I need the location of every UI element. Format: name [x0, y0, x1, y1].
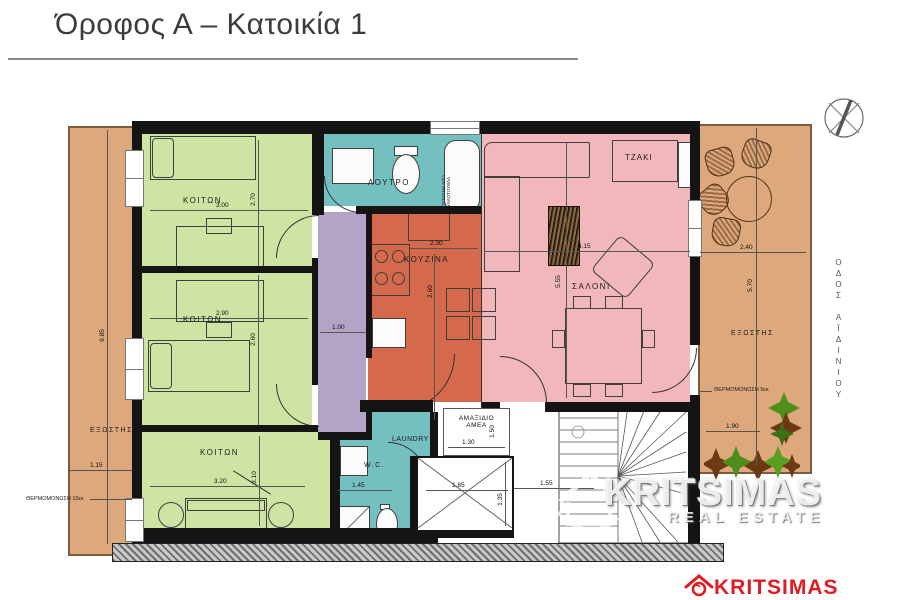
wall-right-2	[690, 255, 700, 345]
bedroom3-window	[125, 498, 144, 542]
desk1-chair	[206, 218, 232, 234]
bed3-pillows	[187, 500, 265, 511]
sofa-horizontal	[484, 142, 590, 178]
wall-bed3-wc	[330, 432, 340, 540]
slide: Όροφος Α – Κατοικία 1	[0, 0, 900, 600]
dimline-living-w	[484, 251, 690, 252]
wall-right-3	[690, 395, 700, 412]
wall-left-3	[132, 398, 142, 498]
dining-chair-3	[573, 384, 591, 397]
bed3-nightstand-right	[268, 502, 294, 528]
glassblock-note: ΠΕΤΑΣΜΑ ΑΠΟ ΥΑΛΟΤΟΥΒΛΑ	[441, 175, 451, 207]
dim-corridor-w: 1.00	[332, 324, 345, 331]
dimline-bed3-h	[259, 436, 260, 526]
toilet	[392, 154, 420, 194]
wall-bath-bottom-2	[356, 206, 482, 214]
dim-amea-w: 1.30	[462, 439, 475, 446]
kitchen-counter-top	[408, 213, 450, 241]
dimline-bed1-h	[258, 140, 259, 266]
logo-house-icon	[684, 572, 714, 600]
living-window	[688, 200, 702, 257]
dim-bed1-h: 2.70	[250, 193, 257, 206]
dim-bed3-w: 3.20	[214, 478, 227, 485]
wall-hall-left-2	[312, 258, 318, 385]
dim-balcR-h: 5.70	[747, 279, 754, 292]
bedroom1-window	[125, 150, 144, 207]
insulation-left-leader	[90, 499, 132, 500]
dimline-elev-w	[426, 490, 508, 491]
insulation-right-leader	[700, 391, 712, 392]
stove-burner-3	[375, 272, 388, 285]
kitchen-chair-2	[472, 288, 496, 312]
balcony-door-arc	[652, 348, 697, 393]
wall-hall-right-1	[366, 212, 372, 358]
kitchen-chair-1	[446, 288, 470, 312]
dim-wc-w: 1.45	[352, 482, 365, 489]
bed1-pillow	[152, 138, 174, 178]
dim-elev-h: 1.35	[497, 493, 504, 506]
dimline-balcR-h	[756, 128, 757, 466]
dining-chair-1	[573, 296, 591, 309]
glassblock-window	[430, 121, 480, 135]
kitchen-label: ΚΟΥΖΙΝΑ	[404, 255, 449, 264]
dim-elev-w: 1.85	[452, 482, 465, 489]
dimline-bed2-w	[150, 318, 308, 319]
dimline-bed1-w	[150, 210, 308, 211]
insulation-note-left: ΘΕΡΜΟΜΟΝΩΣΗ 10εκ	[26, 496, 84, 502]
wall-left-1	[132, 121, 142, 150]
dim-bed2-h: 2.60	[250, 333, 257, 346]
dim-bed3-h: 3.10	[251, 471, 258, 484]
amea-label-1: ΑΜΑΞΙΔΙΟ	[444, 415, 509, 422]
dimline-wc-w	[338, 490, 392, 491]
dining-chair-5	[552, 330, 565, 348]
fireplace-label: ΤΖΑΚΙ	[625, 153, 653, 162]
dim-balcL-w: 1.15	[90, 462, 103, 469]
kitchen-chair-4	[472, 316, 496, 340]
living-label: ΣΑΛΟΝΙ	[572, 282, 611, 291]
planter-right	[768, 392, 804, 452]
desk2-chair	[206, 322, 232, 338]
dim-balcL-h: 9.85	[99, 329, 106, 342]
balcony-right-label: ΕΞΩΣΤΗΣ	[731, 330, 774, 337]
balcony-left-label: ΕΞΩΣΤΗΣ	[90, 427, 133, 434]
dim-living-w: 4.15	[578, 243, 591, 250]
dining-chair-4	[605, 384, 623, 397]
dimline-balcR-w	[700, 252, 806, 253]
glassblock-note-line2: ΥΑΛΟΤΟΥΒΛΑ	[446, 175, 451, 207]
stove-burner-1	[375, 250, 388, 263]
bedroom2-window	[125, 338, 144, 400]
dim-amea-h: 1.50	[489, 425, 496, 438]
dim-planter-w: 1.90	[726, 423, 739, 430]
insulation-note-right: ΘΕΡΜΟΜΟΝΩΣΗ 5εκ	[714, 387, 769, 393]
wood-column	[548, 206, 580, 266]
sofa-vertical	[484, 176, 520, 272]
dimline-corridor	[320, 332, 366, 333]
kitchen-chair-3	[446, 316, 470, 340]
wall-living-bottom-2	[545, 402, 690, 412]
dimline-planter-w	[706, 431, 760, 432]
wall-right-1	[690, 121, 700, 200]
dining-chair-2	[605, 296, 623, 309]
kitchen-sink	[372, 318, 406, 348]
dimline-elev-h	[505, 462, 506, 526]
wall-left-2	[132, 205, 142, 338]
dim-living-h: 5.55	[555, 275, 562, 288]
wall-bottom-hatched	[112, 543, 724, 562]
dim-balcR-w: 2.40	[740, 244, 753, 251]
dimline-bed3-w	[150, 486, 305, 487]
dim-stair-w: 1.55	[540, 480, 553, 487]
dimline-bed2-h	[258, 275, 259, 425]
dimline-kitchen-h	[434, 254, 435, 420]
bathroom-label: ΛΟΥΤΡΟ	[368, 178, 410, 187]
wall-top	[132, 121, 700, 134]
wall-bed2-bed3	[142, 425, 318, 432]
dim-bed2-w: 2.90	[216, 310, 229, 317]
dimline-balcL-h	[107, 130, 108, 544]
page-title: Όροφος Α – Κατοικία 1	[55, 8, 367, 42]
wall-bottom	[142, 528, 432, 543]
dimline-kitchen-w	[410, 248, 478, 249]
wall-laundry-top	[360, 400, 433, 412]
wall-bath-bottom-1	[318, 206, 324, 214]
wc-label: W.C.	[364, 462, 385, 469]
dimline-living-h	[566, 142, 567, 398]
wall-kitchen-living	[481, 134, 482, 412]
north-compass-icon	[820, 94, 868, 142]
title-divider	[8, 58, 578, 60]
dim-kitchen-w: 2.30	[430, 240, 443, 247]
street-name: ΟΔΟΣ ΑΪΔΙΝΙΟΥ	[834, 258, 843, 401]
balcony-table	[726, 176, 772, 222]
wc-sink	[340, 446, 368, 476]
dim-kitchen-h: 2.60	[427, 285, 434, 298]
bed3-nightstand-left	[158, 502, 184, 528]
bedroom3-label: ΚΟΙΤΩΝ	[200, 448, 239, 457]
amea-lobby-box: ΑΜΑΞΙΔΙΟ ΑΜΕΑ	[443, 408, 510, 456]
wall-hall-left-1	[312, 134, 324, 215]
stove-burner-4	[392, 272, 405, 285]
dining-chair-6	[642, 330, 655, 348]
bed2-pillow	[150, 343, 172, 389]
watermark-subtext: REAL ESTATE	[668, 509, 825, 526]
laundry-label: LAUNDRY	[392, 436, 429, 443]
dimline-amea-w	[448, 447, 505, 448]
wall-bed1-bed2	[142, 266, 318, 273]
dim-bed1-w: 3.00	[216, 202, 229, 209]
dimline-balcL-w	[68, 470, 132, 471]
logo-text: KRITSIMAS	[714, 576, 839, 600]
dining-table	[565, 308, 642, 384]
wall-hall-bottom	[318, 432, 372, 440]
amea-label-2: ΑΜΕΑ	[444, 422, 509, 429]
